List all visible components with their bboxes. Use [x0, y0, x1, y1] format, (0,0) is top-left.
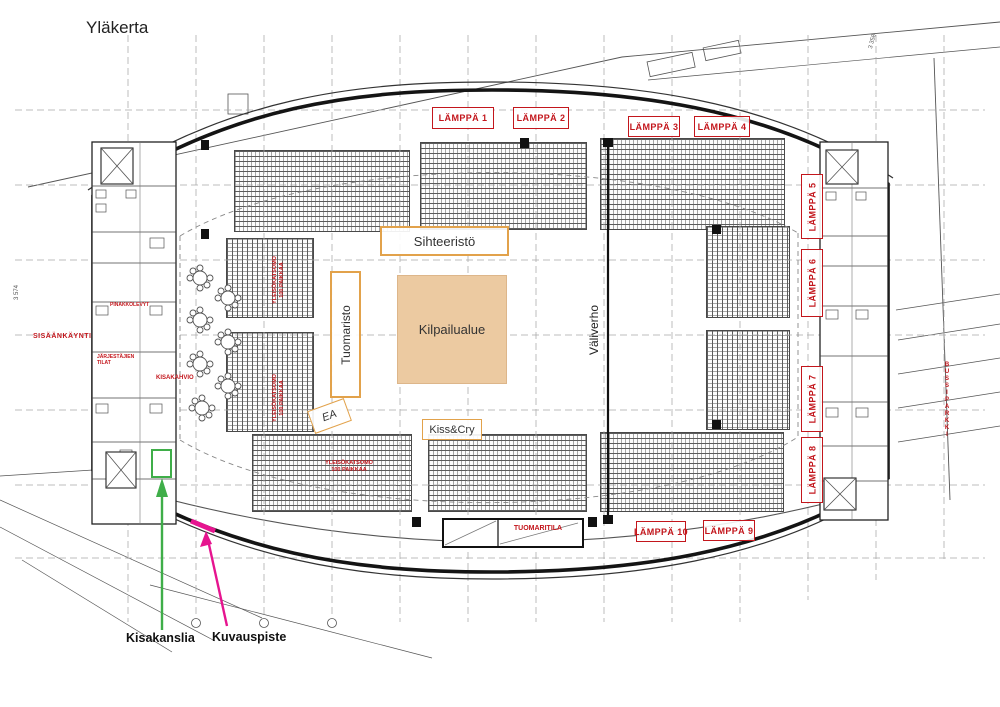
page-title: Yläkerta — [86, 18, 148, 38]
judges-area-label: TUOMARITILA — [510, 525, 566, 532]
lamppa-10-label: LÄMPPÄ 10 — [636, 521, 686, 542]
lamppa-2-label: LÄMPPÄ 2 — [513, 107, 569, 129]
entrance-label: SISÄÄNKÄYNTI — [33, 333, 92, 340]
judges-table-box — [443, 519, 583, 547]
lamppa-3-label: LÄMPPÄ 3 — [628, 116, 680, 137]
lamppa-1-label: LÄMPPÄ 1 — [432, 107, 494, 129]
cafe-label: KISAKAHVIO — [156, 375, 194, 381]
cafe-round-tables — [187, 265, 241, 421]
audience-stand-note-left-lower: YLEISÖKATSOMO 100 PAIKKAA — [272, 368, 286, 428]
lamppa-7-label: LÄMPPÄ 7 — [801, 366, 823, 432]
lamppa-4-label: LÄMPPÄ 4 — [694, 116, 750, 137]
lamppa-6-label: LÄMPPÄ 6 — [801, 249, 823, 317]
kiss-and-cry-box: Kiss&Cry — [422, 419, 482, 440]
lamppa-5-label: LÄMPPÄ 5 — [801, 174, 823, 239]
floor-plan: Yläkerta LÄMPPÄ 1 LÄMPPÄ 2 LÄMPPÄ 3 LÄMP… — [0, 0, 1000, 707]
curtain-line — [603, 138, 613, 524]
competition-area: Kilpailualue — [397, 275, 507, 384]
organizer-rooms-label: JÄRJESTÄJIEN TILAT — [97, 354, 134, 366]
jury-box: Tuomaristo — [330, 271, 361, 398]
kisakanslia-label: Kisakanslia — [126, 631, 195, 645]
kuvauspiste-label: Kuvauspiste — [212, 630, 286, 644]
dimension-left: 3 574 — [14, 285, 20, 300]
panel-boards-label: PINAKKOLEVYT — [110, 302, 149, 308]
audience-stand-note-bottom: YLEISÖKATSOMO 100 PAIKKAA — [318, 460, 380, 474]
lamppa-8-label: LÄMPPÄ 8 — [801, 437, 823, 503]
secretariat-box: Sihteeristö — [380, 226, 509, 256]
audience-stand-note-left-upper: YLEISÖKATSOMO 100 PAIKKAA — [272, 250, 286, 310]
camera-point-marker — [191, 521, 215, 531]
bus-parking-label: BUSSIPARKKI — [944, 362, 950, 432]
kuvauspiste-arrow — [200, 531, 227, 626]
right-wing-rooms — [820, 142, 888, 520]
lamppa-9-label: LÄMPPÄ 9 — [703, 520, 755, 541]
curtain-label: Väliverho — [586, 300, 602, 360]
